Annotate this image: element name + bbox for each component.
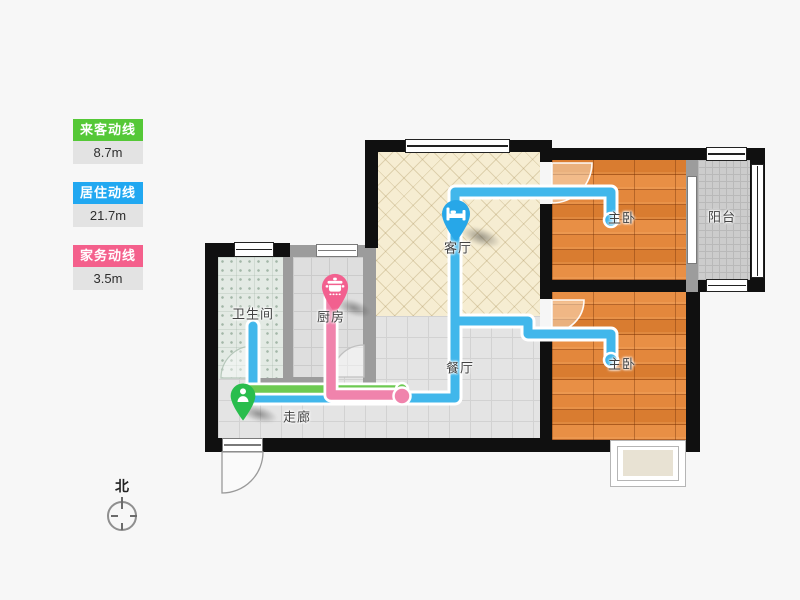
legend-visitor-value: 8.7m: [73, 141, 143, 164]
window: [751, 164, 764, 278]
window: [687, 176, 697, 264]
room-label-bathroom: 卫生间: [232, 304, 274, 323]
room-label-bedroom1: 主卧: [608, 208, 636, 227]
legend-item-living: 居住动线 21.7m: [73, 182, 143, 227]
bay-window: [610, 440, 686, 487]
pin-shape: [442, 200, 470, 242]
room-label-bedroom2: 主卧: [608, 354, 636, 373]
legend-item-housework: 家务动线 3.5m: [73, 245, 143, 290]
window: [706, 279, 748, 292]
room-label-living: 客厅: [444, 238, 472, 257]
wall: [205, 438, 222, 452]
room-label-dining: 餐厅: [446, 358, 474, 377]
wall: [263, 438, 552, 452]
north-label: 北: [115, 476, 129, 496]
wall: [293, 377, 332, 387]
window: [706, 147, 747, 161]
wall: [283, 257, 293, 390]
wall: [545, 440, 610, 452]
wall: [253, 378, 293, 390]
room-label-balcony: 阳台: [708, 207, 736, 226]
wall: [686, 285, 700, 452]
legend-item-visitor: 来客动线 8.7m: [73, 119, 143, 164]
marker-entrance[interactable]: [228, 381, 258, 423]
door-arc-entrance: [222, 452, 263, 493]
legend-living-label[interactable]: 居住动线: [73, 182, 143, 204]
legend-visitor-label[interactable]: 来客动线: [73, 119, 143, 141]
north-compass: 北: [95, 478, 151, 538]
wall: [205, 243, 218, 452]
door-opening: [540, 162, 552, 204]
window: [316, 244, 358, 257]
wall: [365, 140, 378, 248]
legend-housework-value: 3.5m: [73, 267, 143, 290]
floorplan-app: 来客动线 8.7m 居住动线 21.7m 家务动线 3.5m 北: [0, 0, 800, 600]
window: [234, 242, 274, 257]
door-opening: [540, 299, 552, 341]
entrance-sill: [222, 438, 263, 452]
window: [405, 139, 510, 153]
legend-living-value: 21.7m: [73, 204, 143, 227]
room-label-corridor: 走廊: [283, 407, 311, 426]
movement-legend: 来客动线 8.7m 居住动线 21.7m 家务动线 3.5m: [73, 119, 143, 308]
room-label-kitchen: 厨房: [317, 307, 345, 326]
legend-housework-label[interactable]: 家务动线: [73, 245, 143, 267]
